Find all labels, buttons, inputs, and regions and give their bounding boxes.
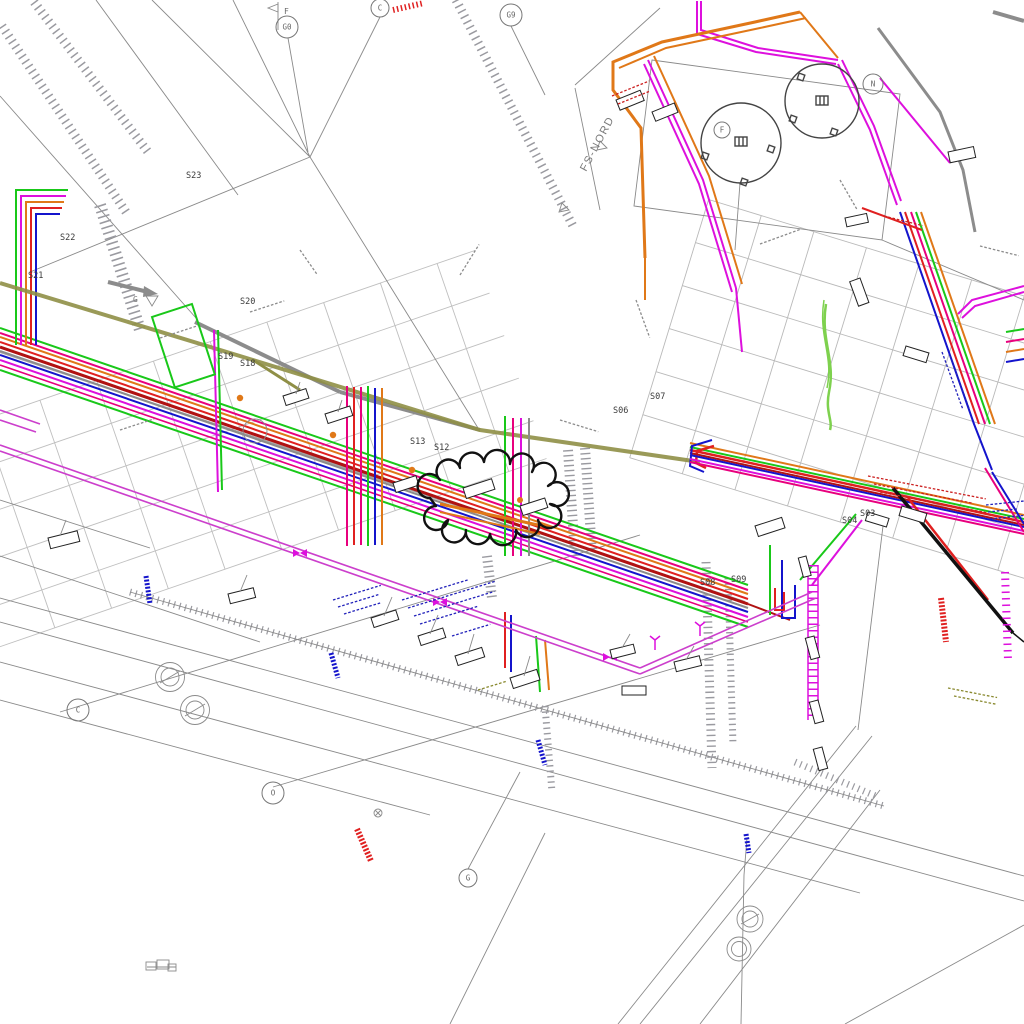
micro-text-row <box>452 624 490 636</box>
red-hatched-bar <box>357 829 371 861</box>
svg-text:C: C <box>76 706 81 715</box>
svg-text:G: G <box>466 874 471 883</box>
micro-text-row <box>954 696 997 704</box>
cad-drawing-viewport: FS-NORD F G S23S22S21S20S19S18S13S12S08S… <box>0 0 1024 1024</box>
svg-text:O: O <box>271 789 276 798</box>
arrow-letter: G <box>133 295 138 304</box>
station-label-s22: S22 <box>60 233 75 243</box>
micro-text-row <box>980 246 1019 256</box>
station-label-s07: S07 <box>650 392 665 402</box>
annotation-box <box>616 90 644 110</box>
micro-text-row <box>760 229 801 244</box>
micro-text-row <box>478 681 507 690</box>
svg-text:G9: G9 <box>506 11 515 20</box>
flag-letter: F <box>284 7 289 16</box>
grid-bubble-n: N <box>863 74 883 94</box>
station-label-s23: S23 <box>186 171 201 181</box>
grid-bubble-g0: G0 <box>276 16 298 38</box>
micro-text-row <box>344 603 380 614</box>
annotation-box <box>622 686 646 695</box>
annotation-box <box>948 147 976 163</box>
micro-text-annotations <box>120 81 1024 704</box>
storage-tank <box>785 64 859 138</box>
annotation-box <box>813 747 827 771</box>
grid-bubble-g: G <box>459 869 477 887</box>
area-label-fs-nord: FS-NORD <box>578 114 617 173</box>
title-mark <box>146 960 176 971</box>
grid-bubbles: G0CG9FNCOG <box>67 0 883 887</box>
micro-text-row <box>460 244 479 275</box>
hatched-roads <box>2 0 884 806</box>
micro-text-row <box>636 300 650 338</box>
station-label-s13: S13 <box>410 437 425 447</box>
svg-text:C: C <box>378 4 383 13</box>
station-label-s21: S21 <box>28 271 43 281</box>
annotation-box <box>48 531 80 549</box>
grid-bubble-c: C <box>371 0 389 17</box>
blue-stubs <box>146 576 749 853</box>
storage-tank <box>701 103 781 186</box>
grid-bubble-o: O <box>262 782 284 804</box>
annotation-box <box>798 556 811 577</box>
annotation-box <box>455 647 485 665</box>
micro-text-row <box>300 250 317 275</box>
svg-text:N: N <box>871 80 876 89</box>
annotation-box <box>520 498 548 516</box>
utility-corridors <box>0 1 1024 861</box>
site-utility-plan-canvas: FS-NORD F G S23S22S21S20S19S18S13S12S08S… <box>0 0 1024 1024</box>
svg-text:F: F <box>720 126 725 135</box>
micro-text-row <box>333 585 381 600</box>
top-mains <box>613 1 950 352</box>
annotation-box <box>755 517 785 536</box>
station-label-s20: S20 <box>240 297 255 307</box>
station-label-s06: S06 <box>613 406 628 416</box>
light-green-duct <box>825 304 831 430</box>
station-label-s09: S09 <box>731 575 746 585</box>
micro-text-row <box>420 606 477 624</box>
grid-bubble-f: F <box>714 122 730 138</box>
annotation-box <box>283 389 309 406</box>
parcel-grid-right <box>630 200 1024 584</box>
micro-text-row <box>988 509 1018 512</box>
station-label-s19: S19 <box>218 352 233 362</box>
annotation-box <box>845 213 868 226</box>
station-label-s12: S12 <box>434 443 449 453</box>
annotation-box <box>903 346 929 363</box>
station-label-s18: S18 <box>240 359 255 369</box>
grid-bubble-c: C <box>67 699 89 721</box>
station-label-s08: S08 <box>700 578 715 588</box>
station-label-s04: S04 <box>842 516 857 526</box>
annotation-box <box>228 588 256 604</box>
svg-text:G0: G0 <box>282 23 292 32</box>
micro-text-row <box>840 180 857 209</box>
corridor-northeast <box>862 208 995 470</box>
grid-bubble-g9: G9 <box>500 4 522 26</box>
micro-text-row <box>560 420 598 432</box>
station-label-s03: S03 <box>860 509 875 519</box>
annotation-box <box>809 700 823 724</box>
